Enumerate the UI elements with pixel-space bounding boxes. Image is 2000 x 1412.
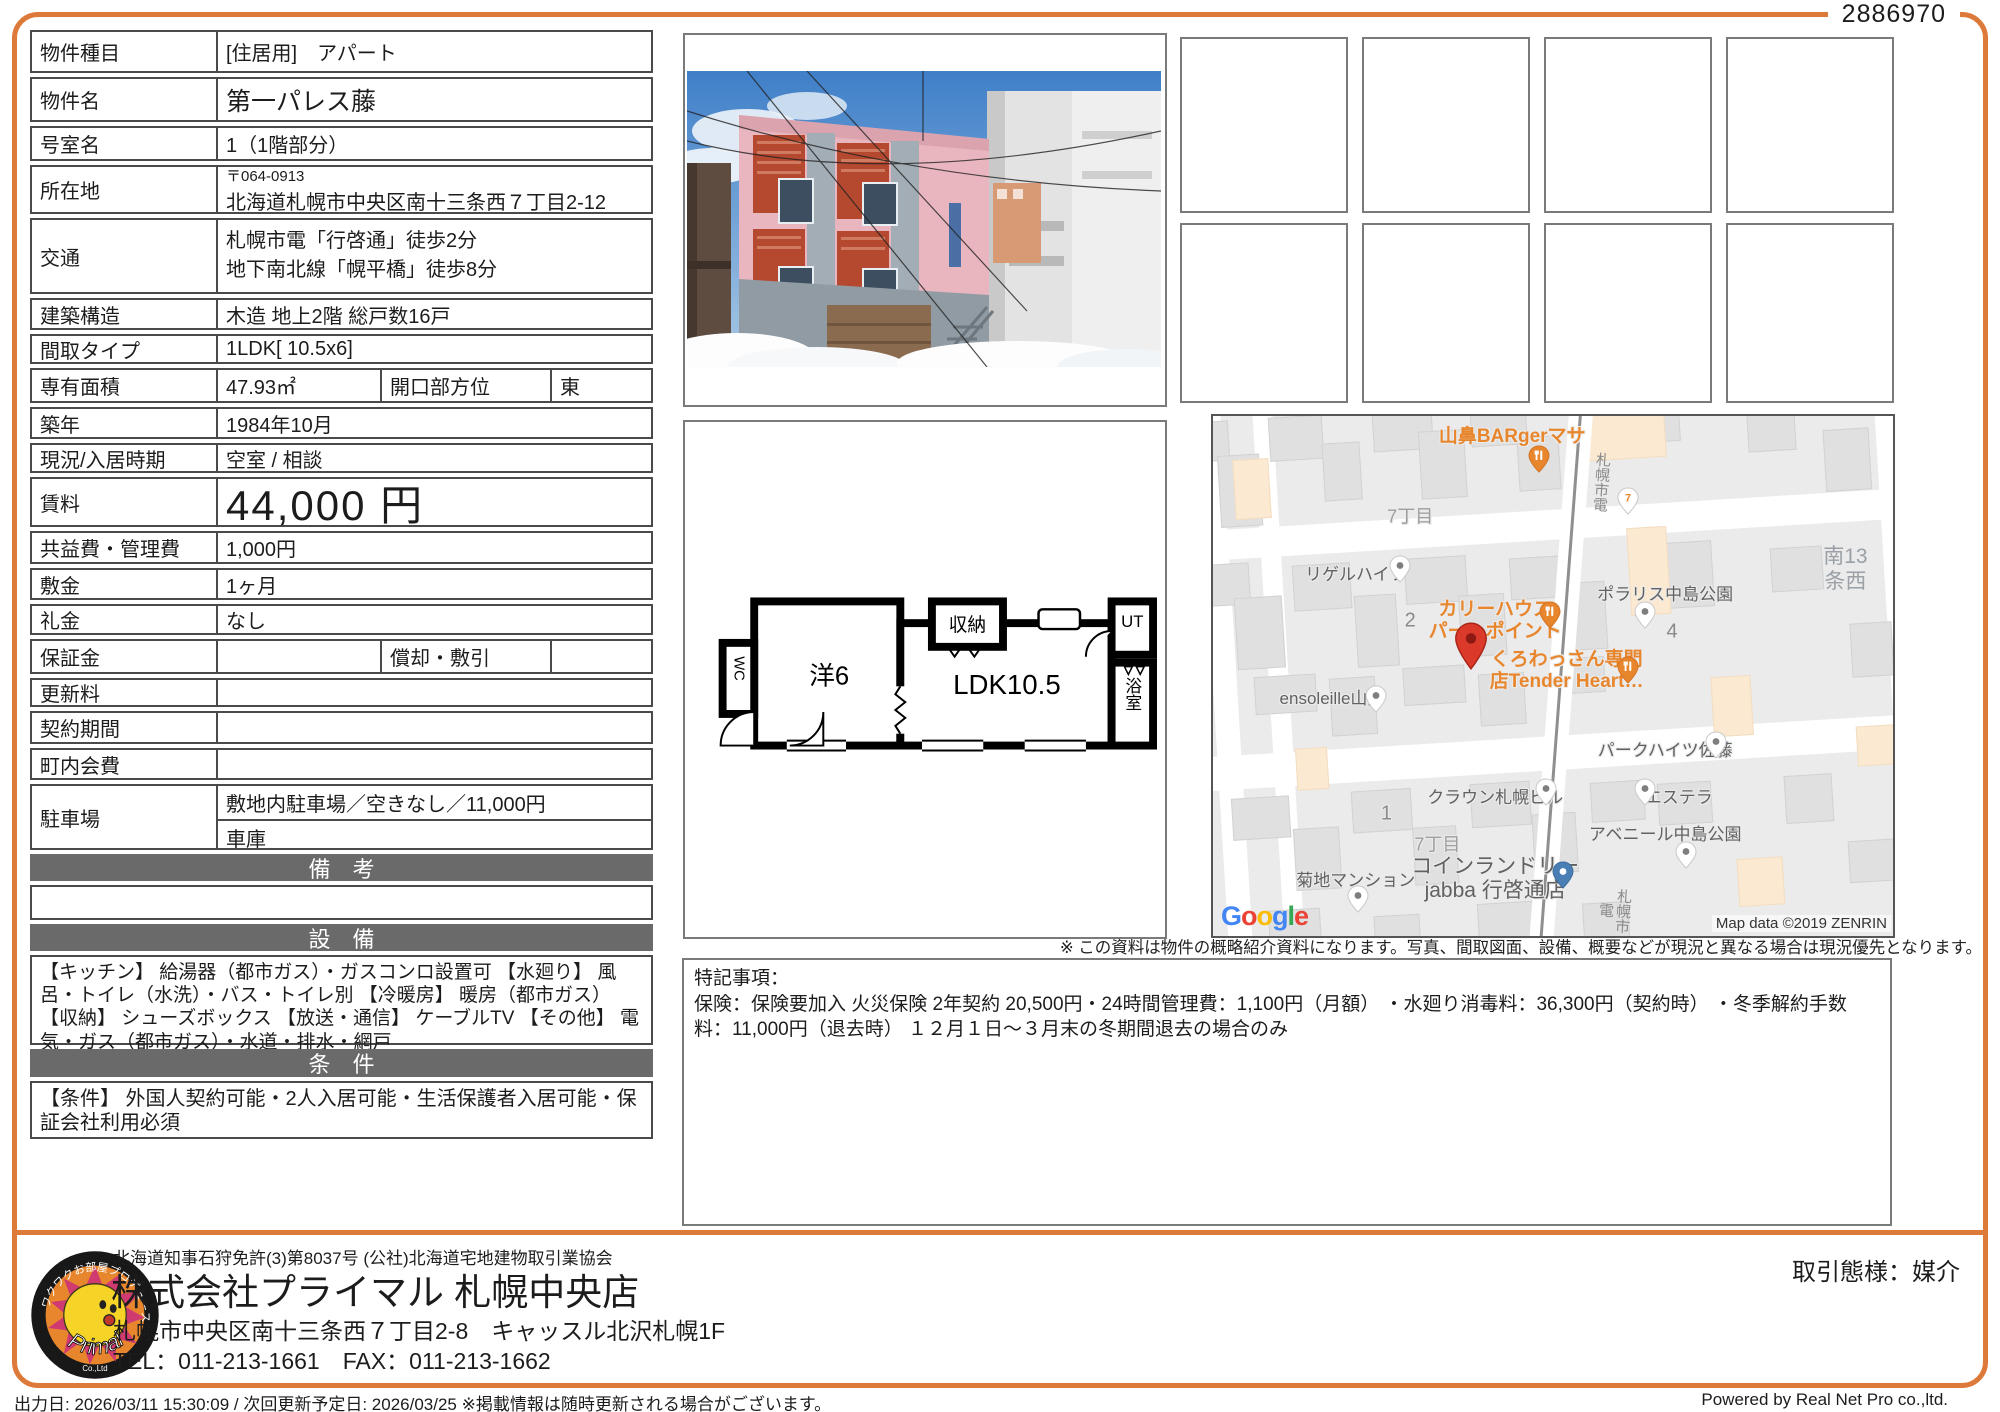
svg-text:浴室: 浴室 — [1123, 677, 1142, 711]
row-label: 礼金 — [32, 606, 216, 633]
row-label: 現況/入居時期 — [32, 445, 216, 471]
row-value: 1（1階部分） — [216, 128, 651, 159]
table-row: 所在地 〒064-0913 北海道札幌市中央区南十三条西７丁目2-12 — [30, 165, 653, 214]
row-value: 1LDK[ 10.5x6] — [216, 336, 651, 362]
row-value — [216, 680, 651, 705]
map-copyright: Map data ©2019 ZENRIN — [1712, 915, 1891, 932]
amortization-label: 償却・敷引 — [380, 641, 550, 672]
row-label: 契約期間 — [32, 713, 216, 742]
opening-value: 東 — [550, 370, 651, 401]
building-photo — [683, 33, 1167, 407]
table-row: 敷金 1ヶ月 — [30, 568, 653, 600]
map-pin-white — [1633, 601, 1657, 634]
section-conditions: 条 件 — [30, 1049, 653, 1077]
parking-cell: 敷地内駐車場／空きなし／11,000円 車庫 — [216, 786, 651, 848]
map-pin-white — [1633, 778, 1657, 811]
table-row: 交通 札幌市電「行啓通」徒歩2分 地下南北線「幌平橋」徒歩8分 — [30, 218, 653, 294]
special-notes: 特記事項： 保険：保険要加入 火災保険 2年契約 20,500円・24時間管理費… — [682, 958, 1892, 1226]
special-notes-body: 保険：保険要加入 火災保険 2年契約 20,500円・24時間管理費：1,100… — [694, 992, 1880, 1043]
photo-placeholder — [1726, 223, 1894, 403]
opening-label: 開口部方位 — [380, 370, 550, 401]
row-label: 町内会費 — [32, 750, 216, 778]
address-text: 北海道札幌市中央区南十三条西７丁目2-12 — [226, 186, 643, 215]
photo-placeholder — [1726, 37, 1894, 213]
table-row: 現況/入居時期 空室 / 相談 — [30, 443, 653, 473]
row-value: 木造 地上2階 総戸数16戸 — [216, 300, 651, 328]
row-label: 建築構造 — [32, 300, 216, 328]
powered-by: Powered by Real Net Pro co.,ltd. — [1701, 1390, 1948, 1410]
deal-type: 取引態様：媒介 — [1792, 1252, 1960, 1287]
svg-text:洋6: 洋6 — [809, 661, 849, 690]
parking-line1: 敷地内駐車場／空きなし／11,000円 — [218, 786, 651, 821]
photo-placeholder — [1544, 223, 1712, 403]
table-row: 号室名 1（1階部分） — [30, 126, 653, 161]
table-row: 共益費・管理費 1,000円 — [30, 531, 653, 564]
row-label: 賃料 — [32, 479, 216, 525]
row-value — [216, 713, 651, 742]
document-number: 2886970 — [1828, 0, 1960, 29]
table-row: 建築構造 木造 地上2階 総戸数16戸 — [30, 298, 653, 330]
svg-text:UT: UT — [1121, 612, 1143, 631]
map-pin-white — [1674, 841, 1698, 874]
photo-placeholder — [1544, 37, 1712, 213]
row-label: 物件種目 — [32, 32, 216, 71]
row-label: 専有面積 — [32, 370, 216, 401]
table-row: 駐車場 敷地内駐車場／空きなし／11,000円 車庫 — [30, 784, 653, 850]
section-remarks: 備 考 — [30, 854, 653, 881]
access-line1: 札幌市電「行啓通」徒歩2分 — [226, 224, 643, 253]
property-sheet: 2886970 物件種目 [住居用] アパート 物件名 第一パレス藤 号室名 1… — [0, 0, 2000, 1412]
company-name: 株式会社プライマル 札幌中央店 — [111, 1262, 639, 1316]
company-address: 札幌市中央区南十三条西７丁目2-8 キャッスル北沢札幌1F — [113, 1312, 725, 1346]
building-photo-image — [687, 71, 1161, 367]
area-value: 47.93㎡ — [216, 370, 380, 401]
access-cell: 札幌市電「行啓通」徒歩2分 地下南北線「幌平橋」徒歩8分 — [216, 220, 651, 292]
table-row: 賃料 44,000 円 — [30, 477, 653, 527]
section-equipment: 設 備 — [30, 924, 653, 951]
svg-text:7: 7 — [1625, 493, 1631, 505]
access-line2: 地下南北線「幌平橋」徒歩8分 — [226, 253, 643, 282]
svg-text:LDK10.5: LDK10.5 — [953, 669, 1061, 700]
row-value: [住居用] アパート — [216, 32, 651, 71]
footer-divider — [12, 1230, 1988, 1235]
svg-text:収納: 収納 — [949, 614, 987, 635]
table-row: 物件名 第一パレス藤 — [30, 77, 653, 122]
table-row: 保証金 償却・敷引 — [30, 639, 653, 674]
map-pin-target — [1452, 621, 1490, 676]
row-value — [216, 750, 651, 778]
map-pin-restaurant — [1538, 601, 1562, 634]
row-value: 1ヶ月 — [216, 570, 651, 598]
map-pin-laundry — [1551, 861, 1575, 894]
table-row: 物件種目 [住居用] アパート — [30, 30, 653, 73]
map-pin-white — [1534, 778, 1558, 811]
photo-placeholder — [1180, 223, 1348, 403]
floor-plan: 洋6 LDK10.5 収納 UT 浴室 WC — [683, 420, 1167, 939]
map-pin-white — [1364, 685, 1388, 718]
logo-sub: Co.,Ltd — [82, 1364, 107, 1373]
photo-placeholder — [1362, 223, 1530, 403]
photo-placeholder — [1180, 37, 1348, 213]
row-value: 1,000円 — [216, 533, 651, 562]
table-row: 間取タイプ 1LDK[ 10.5x6] — [30, 334, 653, 364]
table-row: 契約期間 — [30, 711, 653, 744]
special-notes-title: 特記事項： — [694, 966, 1880, 992]
map-pins: 7 — [1213, 416, 1893, 936]
table-row: 専有面積 47.93㎡ 開口部方位 東 — [30, 368, 653, 403]
row-label: 間取タイプ — [32, 336, 216, 362]
row-label: 保証金 — [32, 641, 216, 672]
row-label: 交通 — [32, 220, 216, 292]
property-info-table: 物件種目 [住居用] アパート 物件名 第一パレス藤 号室名 1（1階部分） 所… — [30, 30, 653, 1139]
google-logo: Google — [1221, 901, 1308, 932]
parking-line2: 車庫 — [218, 821, 651, 854]
floor-plan-drawing: 洋6 LDK10.5 収納 UT 浴室 WC — [693, 580, 1157, 765]
output-date: 出力日: 2026/03/11 15:30:09 / 次回更新予定日: 2026… — [14, 1390, 831, 1412]
row-label: 共益費・管理費 — [32, 533, 216, 562]
postal-code: 〒064-0913 — [226, 169, 643, 186]
map-pin-restaurant — [1616, 656, 1640, 689]
row-value: 空室 / 相談 — [216, 445, 651, 471]
row-label: 築年 — [32, 409, 216, 437]
row-label: 物件名 — [32, 79, 216, 120]
map-pin-restaurant — [1527, 445, 1551, 478]
table-row: 築年 1984年10月 — [30, 407, 653, 439]
address-cell: 〒064-0913 北海道札幌市中央区南十三条西７丁目2-12 — [216, 167, 651, 212]
row-label: 敷金 — [32, 570, 216, 598]
remarks-body — [30, 885, 653, 920]
company-tel-fax: TEL：011-213-1661 FAX：011-213-1662 — [113, 1342, 551, 1376]
row-label: 号室名 — [32, 128, 216, 159]
row-label: 所在地 — [32, 167, 216, 212]
conditions-body: 【条件】 外国人契約可能・2人入居可能・生活保護者入居可能・保証会社利用必須 — [30, 1081, 653, 1139]
map-pin-white — [1704, 731, 1728, 764]
map-pin-white — [1346, 885, 1370, 918]
guarantee-value — [216, 641, 380, 672]
row-value: なし — [216, 606, 651, 633]
amortization-value — [550, 641, 651, 672]
table-row: 町内会費 — [30, 748, 653, 780]
property-name: 第一パレス藤 — [216, 79, 651, 120]
photo-placeholder — [1362, 37, 1530, 213]
rent-value: 44,000 円 — [216, 479, 651, 525]
equipment-body: 【キッチン】 給湯器（都市ガス）・ガスコンロ設置可 【水廻り】 風呂・トイレ（水… — [30, 955, 653, 1045]
row-value: 1984年10月 — [216, 409, 651, 437]
row-label: 駐車場 — [32, 786, 216, 848]
svg-text:WC: WC — [730, 656, 746, 681]
map-pin-seven: 7 — [1616, 487, 1640, 520]
table-row: 更新料 — [30, 678, 653, 707]
row-label: 更新料 — [32, 680, 216, 705]
map-disclaimer: ※ この資料は物件の概略紹介資料になります。写真、間取図面、設備、概要などが現況… — [1060, 934, 1982, 958]
location-map: 山鼻BARgerマサ札幌市電7丁目リゲルハイツ南13条西ポラリス中島公園2カリー… — [1211, 414, 1895, 938]
map-pin-white — [1388, 555, 1412, 588]
table-row: 礼金 なし — [30, 604, 653, 635]
